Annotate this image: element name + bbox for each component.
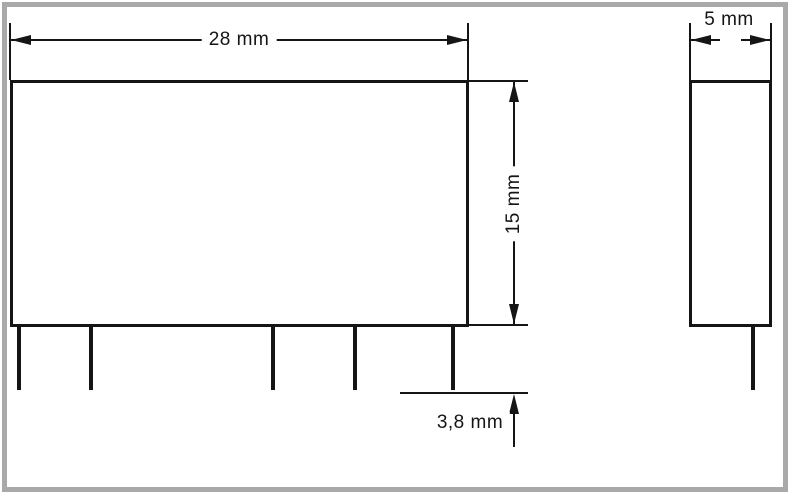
arrowhead-right-icon <box>447 35 467 45</box>
component-body-front <box>10 80 469 327</box>
pin-length-dimension-label: 3,8 mm <box>430 412 510 434</box>
pin-4 <box>353 327 357 390</box>
extension-line-top <box>469 80 528 82</box>
extension-line-bottom <box>469 324 528 326</box>
width-dimension-label: 28 mm <box>202 29 277 51</box>
side-pin <box>751 327 755 390</box>
arrowhead-left-icon <box>11 35 31 45</box>
pin-1 <box>17 327 21 390</box>
pin-3 <box>271 327 275 390</box>
pin-2 <box>89 327 93 390</box>
pin-5 <box>451 327 455 390</box>
arrowhead-right-icon <box>750 35 770 45</box>
depth-dimension-label: 5 mm <box>697 9 761 31</box>
height-dimension-label: 15 mm <box>503 167 525 242</box>
extension-line-left <box>9 23 11 80</box>
arrowhead-down-icon <box>509 304 519 324</box>
component-body-side <box>689 80 772 327</box>
extension-line-left <box>689 23 691 80</box>
arrowhead-left-icon <box>691 35 711 45</box>
extension-line-right <box>770 23 772 80</box>
extension-line-right <box>467 23 469 80</box>
arrow-tail-line <box>513 410 515 447</box>
technical-drawing-canvas: 28 mm 15 mm 5 mm 3,8 mm <box>0 0 790 498</box>
arrowhead-up-icon <box>509 82 519 102</box>
